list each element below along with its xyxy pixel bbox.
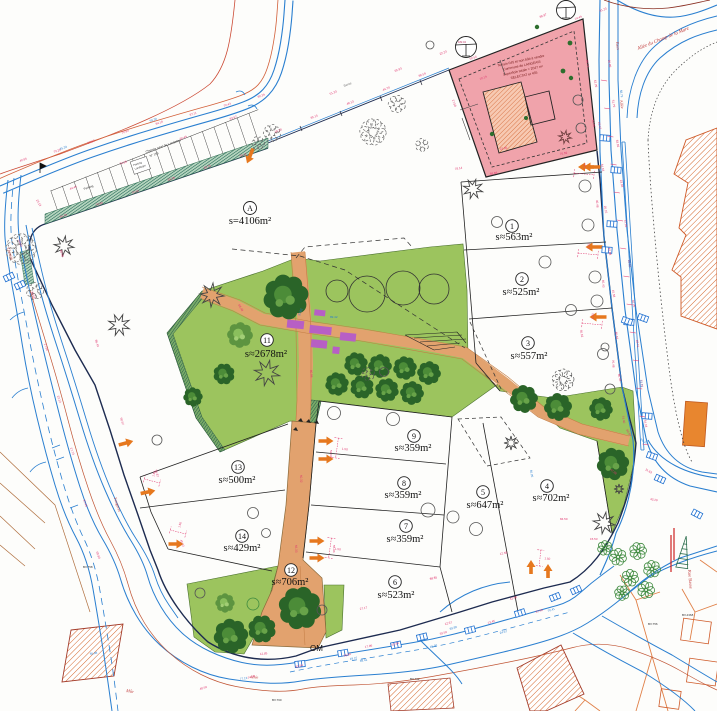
svg-text:s≈523m²: s≈523m² xyxy=(378,590,415,601)
svg-text:56.33: 56.33 xyxy=(294,545,298,553)
svg-text:40.48: 40.48 xyxy=(595,200,600,208)
svg-text:6: 6 xyxy=(393,578,397,587)
svg-text:4: 4 xyxy=(545,482,549,491)
svg-text:s≈702m²: s≈702m² xyxy=(533,493,570,504)
svg-text:BV.762: BV.762 xyxy=(410,677,420,681)
svg-text:182.04: 182.04 xyxy=(458,40,466,44)
svg-text:s≈563m²: s≈563m² xyxy=(496,232,533,243)
svg-text:1.50: 1.50 xyxy=(342,447,349,452)
svg-text:Eaux: Eaux xyxy=(615,42,621,51)
svg-text:s≈706m²: s≈706m² xyxy=(272,577,309,588)
svg-text:55.96: 55.96 xyxy=(332,545,336,553)
svg-text:12.85: 12.85 xyxy=(260,651,268,656)
svg-text:s≈429m²: s≈429m² xyxy=(224,543,261,554)
svg-text:14: 14 xyxy=(238,532,246,541)
svg-text:1: 1 xyxy=(510,222,514,231)
svg-text:8: 8 xyxy=(402,479,406,488)
svg-text:89.42: 89.42 xyxy=(330,315,338,319)
svg-text:BV.4368: BV.4368 xyxy=(682,613,694,617)
svg-text:52.69: 52.69 xyxy=(329,450,333,458)
svg-text:85.86: 85.86 xyxy=(309,370,314,378)
svg-text:1.50: 1.50 xyxy=(590,313,595,319)
svg-text:76.48: 76.48 xyxy=(611,360,616,368)
svg-text:s≈2678m²: s≈2678m² xyxy=(245,349,287,360)
svg-text:84.50: 84.50 xyxy=(560,517,568,521)
svg-text:BV.758: BV.758 xyxy=(83,565,93,569)
svg-text:s≈359m²: s≈359m² xyxy=(395,443,432,454)
svg-text:13: 13 xyxy=(234,463,242,472)
svg-text:11: 11 xyxy=(263,336,271,345)
svg-text:s≈359m²: s≈359m² xyxy=(385,490,422,501)
svg-text:A: A xyxy=(247,204,253,213)
svg-text:15.53: 15.53 xyxy=(590,537,598,541)
svg-text:s=4106m²: s=4106m² xyxy=(229,216,271,227)
svg-text:1.50: 1.50 xyxy=(586,243,591,249)
svg-text:s≈557m²: s≈557m² xyxy=(511,351,548,362)
svg-text:9: 9 xyxy=(412,432,416,441)
svg-text:s≈500m²: s≈500m² xyxy=(219,475,256,486)
svg-text:OM: OM xyxy=(310,644,323,653)
svg-text:1.50: 1.50 xyxy=(544,556,550,561)
svg-text:7: 7 xyxy=(404,522,408,531)
svg-text:5: 5 xyxy=(481,488,485,497)
svg-text:65.43: 65.43 xyxy=(601,280,606,288)
svg-text:3: 3 xyxy=(526,339,530,348)
svg-text:50.32: 50.32 xyxy=(299,475,303,483)
svg-text:BV.756: BV.756 xyxy=(648,622,658,626)
svg-text:s≈647m²: s≈647m² xyxy=(467,500,504,511)
svg-text:1.50: 1.50 xyxy=(582,163,587,169)
svg-text:s≈525m²: s≈525m² xyxy=(503,287,540,298)
svg-text:BV.760: BV.760 xyxy=(272,698,282,702)
svg-text:12: 12 xyxy=(287,566,295,575)
svg-text:s≈359m²: s≈359m² xyxy=(387,534,424,545)
svg-text:2: 2 xyxy=(520,275,524,284)
